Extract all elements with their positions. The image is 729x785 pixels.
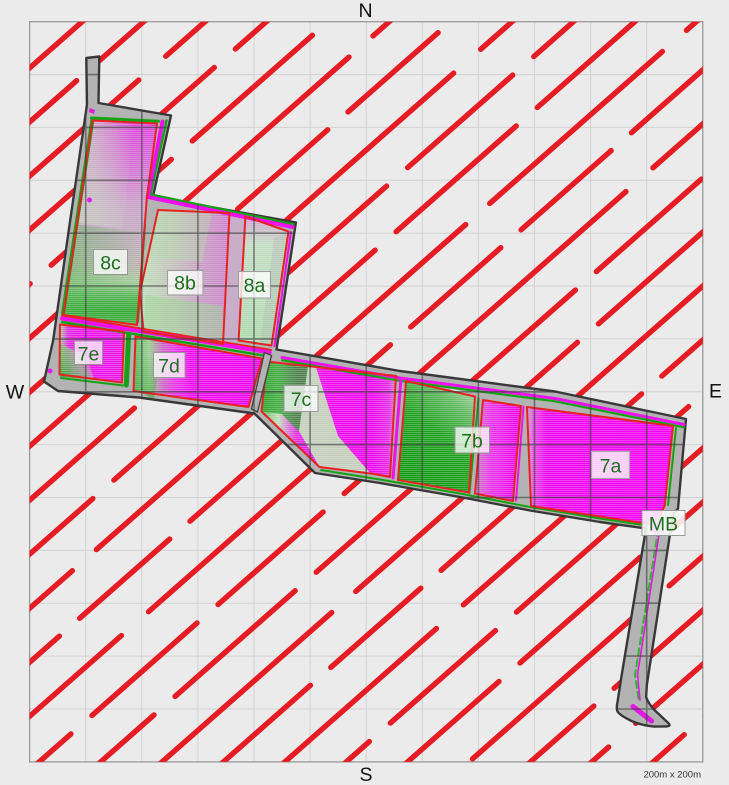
svg-text:W: W	[6, 382, 25, 404]
svg-text:7e: 7e	[78, 344, 100, 366]
svg-text:7c: 7c	[291, 389, 312, 411]
svg-text:8b: 8b	[174, 273, 196, 295]
svg-text:7d: 7d	[158, 356, 180, 378]
svg-text:MB: MB	[649, 514, 678, 536]
svg-text:7b: 7b	[461, 431, 483, 453]
svg-text:200m x 200m: 200m x 200m	[643, 770, 701, 781]
svg-text:E: E	[709, 381, 722, 403]
svg-text:8a: 8a	[244, 275, 266, 297]
svg-text:S: S	[359, 764, 372, 785]
svg-text:8c: 8c	[100, 253, 121, 275]
svg-text:7a: 7a	[600, 456, 622, 478]
svg-text:N: N	[358, 0, 372, 22]
